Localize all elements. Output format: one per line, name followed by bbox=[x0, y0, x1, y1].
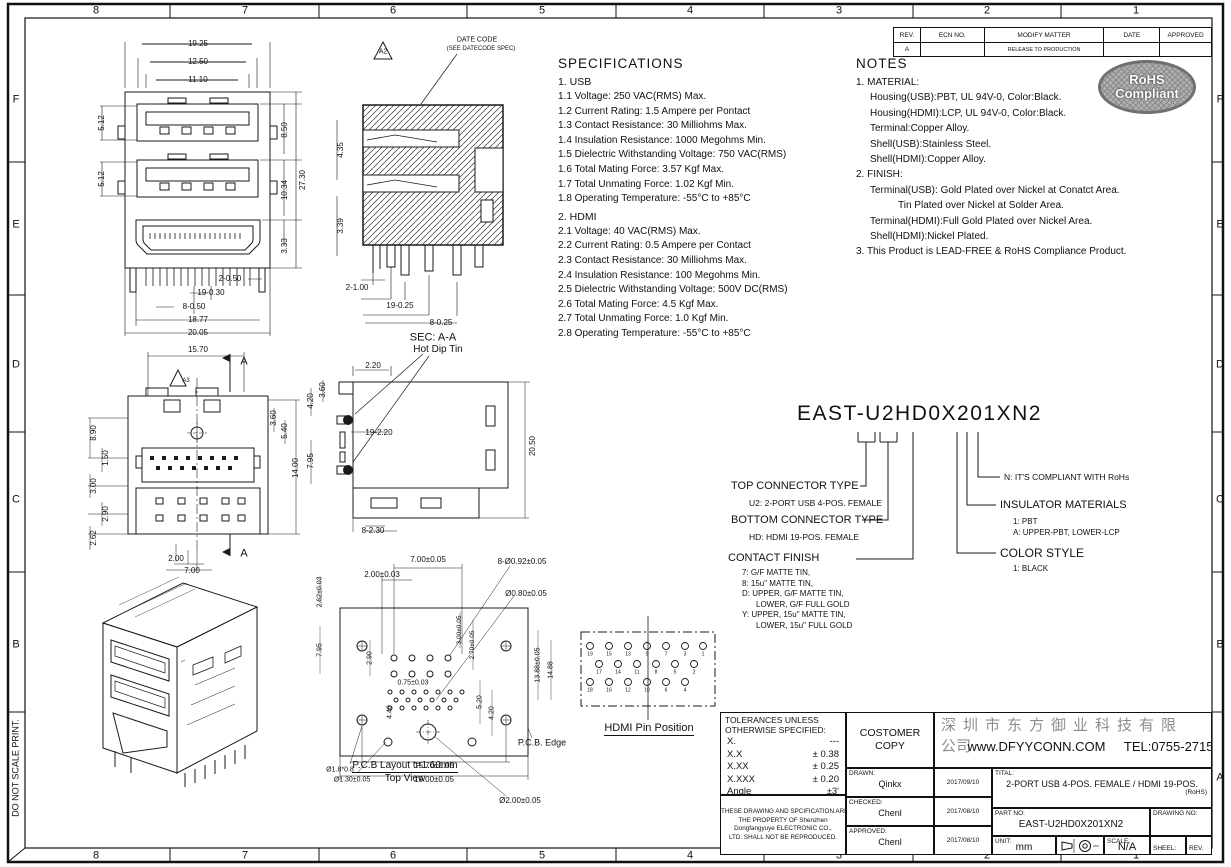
spec-line: 1.3 Contact Resistance: 30 Milliohms Max… bbox=[558, 119, 858, 134]
tolerance-row: X.XX± 0.25 bbox=[721, 761, 845, 774]
dimension-label: 3.60 bbox=[319, 382, 327, 398]
dimension-label: 3.33 bbox=[281, 238, 289, 254]
checked-cell: CHECKED: Chenl bbox=[846, 797, 934, 826]
dimension-label: 8-0.50 bbox=[183, 303, 206, 311]
rev-header: REV. bbox=[894, 28, 921, 43]
dimension-label: 20.50 bbox=[529, 436, 537, 456]
checked-label: CHECKED: bbox=[847, 798, 933, 808]
ecn-value bbox=[921, 43, 985, 57]
spec-line: 1.4 Insulation Resistance: 1000 Megohms … bbox=[558, 134, 858, 149]
pcb-caption-line2: Top View bbox=[330, 773, 480, 784]
spec-usb-heading: 1. USB bbox=[558, 75, 858, 90]
dimension-label: F bbox=[13, 95, 20, 106]
insulator-option: A: UPPER-PBT, LOWER-LCP bbox=[1013, 527, 1120, 538]
dimension-label: Hot Dip Tin bbox=[413, 345, 462, 355]
dimension-label: 2.90 bbox=[102, 506, 110, 522]
checked-name: Chenl bbox=[847, 808, 933, 818]
dimension-label: 7 bbox=[242, 6, 248, 17]
spec-line: 1.2 Current Rating: 1.5 Ampere per Ponta… bbox=[558, 105, 858, 120]
insulator-option: 1: PBT bbox=[1013, 516, 1120, 527]
spec-line: 2.5 Dielectric Withstanding Voltage: 500… bbox=[558, 283, 858, 298]
third-angle-projection-icon bbox=[1057, 837, 1103, 854]
title-box: TITAL: 2-PORT USB 4-POS. FEMALE / HDMI 1… bbox=[992, 768, 1212, 808]
dimension-label: 7.95 bbox=[307, 453, 315, 469]
note-line: Shell(USB):Stainless Steel. bbox=[856, 137, 1201, 152]
tolerance-row: X.XXX± 0.20 bbox=[721, 774, 845, 787]
dimension-label: 15 bbox=[606, 653, 612, 658]
dimension-label: 2.62±0.03 bbox=[317, 576, 324, 607]
specifications-title: SPECIFICATIONS bbox=[558, 56, 858, 71]
spec-hdmi-heading: 2. HDMI bbox=[558, 210, 858, 225]
scale-box: SCALE: N/A bbox=[1104, 836, 1150, 855]
dimension-label: DO NOT SCALE PRINT. bbox=[12, 719, 21, 817]
dimension-label: 14 bbox=[615, 671, 621, 676]
dimension-label: 10.34 bbox=[281, 180, 289, 200]
dimension-label: 5.20 bbox=[477, 695, 484, 709]
insulator-materials-options: 1: PBTA: UPPER-PBT, LOWER-LCP bbox=[1013, 516, 1120, 538]
dimension-label: (SEE DATECODE SPEC) bbox=[447, 46, 516, 52]
side-view-drawing bbox=[293, 340, 545, 540]
dimension-label: DATE CODE bbox=[457, 37, 497, 44]
spec-section-hdmi: 2. HDMI 2.1 Voltage: 40 VAC(RMS) Max.2.2… bbox=[558, 210, 858, 342]
hdmi-pin-caption-text: HDMI Pin Position bbox=[604, 722, 693, 736]
dimension-label: 10 bbox=[644, 689, 650, 694]
part-no-box: PART NO: EAST-U2HD0X201XN2 bbox=[992, 808, 1150, 836]
dimension-label: 17 bbox=[596, 671, 602, 676]
color-style-option: 1: BLACK bbox=[1013, 563, 1048, 574]
dimension-label: 19-0.25 bbox=[386, 302, 413, 310]
spec-line: 2.3 Contact Resistance: 30 Milliohms Max… bbox=[558, 254, 858, 269]
dimension-label: A3 bbox=[182, 378, 189, 384]
front-view: 19.2512.5011.105.125.128.5010.343.3327.3… bbox=[80, 30, 320, 342]
dimension-label: 5.12 bbox=[98, 115, 106, 131]
contact-finish-options: 7: G/F MATTE TIN,8: 15u" MATTE TIN,D: UP… bbox=[742, 568, 852, 631]
dimension-label: 5 bbox=[539, 6, 545, 17]
dimension-label: 3 bbox=[836, 6, 842, 17]
dimension-label: 6 bbox=[390, 851, 396, 862]
dimension-label: 5 bbox=[539, 851, 545, 862]
company-tel: TEL:0755-2715556 bbox=[1124, 739, 1212, 754]
drawn-date: 2017/09/10 bbox=[934, 768, 992, 797]
property-note-line: THE PROPERTY OF Shenzhen bbox=[721, 817, 845, 826]
dimension-label: 8-2.30 bbox=[362, 527, 385, 535]
property-note-line: THESE DRAWING AND SPCIFICATION ARE bbox=[721, 808, 845, 817]
spec-usb-items: 1.1 Voltage: 250 VAC(RMS) Max.1.2 Curren… bbox=[558, 90, 858, 207]
dimension-label: 4.35 bbox=[337, 142, 345, 158]
dimension-label: 1 bbox=[702, 653, 705, 658]
contact-finish-option: 8: 15u" MATTE TIN, bbox=[742, 579, 852, 590]
company-name-cn: 深圳市东方御业科技有限 bbox=[941, 716, 1211, 736]
rev-label: REV. bbox=[1187, 844, 1206, 853]
engineering-drawing-page: 8765432187654321FEDCBFEDCBADO NOT SCALE … bbox=[0, 0, 1231, 867]
top-connector-type-detail: U2: 2-PORT USB 4-POS. FEMALE bbox=[749, 498, 882, 508]
spec-line: 1.7 Total Unmating Force: 1.02 Kgf Min. bbox=[558, 178, 858, 193]
rohs-compliance-callout: N: IT'S COMPLIANT WITH RoHs bbox=[1004, 472, 1129, 482]
dimension-label: 14.88 bbox=[548, 661, 555, 679]
spec-line: 1.1 Voltage: 250 VAC(RMS) Max. bbox=[558, 90, 858, 105]
dimension-label: 0.75±0.03 bbox=[397, 680, 428, 687]
dimension-label: 12 bbox=[625, 689, 631, 694]
approved-cell: APPROVED: Chenl bbox=[846, 826, 934, 855]
scale-label: SCALE: bbox=[1105, 837, 1132, 847]
spec-line: 2.7 Total Unmating Force: 1.0 Kgf Min. bbox=[558, 312, 858, 327]
dimension-label: 2.62 bbox=[90, 530, 98, 546]
dimension-label: 11 bbox=[634, 671, 639, 676]
dimension-label: 20.05 bbox=[188, 329, 208, 337]
spec-line: 2.1 Voltage: 40 VAC(RMS) Max. bbox=[558, 225, 858, 240]
customer-copy-line2: COPY bbox=[875, 740, 905, 753]
dimension-label: 8-Ø0.92±0.05 bbox=[498, 558, 547, 566]
customer-copy-line1: COSTOMER bbox=[860, 727, 920, 740]
dimension-label: 6 bbox=[390, 6, 396, 17]
contact-finish-option: LOWER, 15u" FULL GOLD bbox=[742, 621, 852, 632]
dimension-label: 2.90 bbox=[367, 651, 374, 665]
rear-view: 15.70AAA38.901.503.002.902.623.605.4014.… bbox=[78, 338, 300, 578]
contact-finish-label: CONTACT FINISH bbox=[728, 552, 819, 564]
approved-name: Chenl bbox=[847, 837, 933, 847]
spec-line: 1.6 Total Mating Force: 3.57 Kgf Max. bbox=[558, 163, 858, 178]
section-view-drawing bbox=[325, 30, 540, 344]
specifications-block: SPECIFICATIONS 1. USB 1.1 Voltage: 250 V… bbox=[558, 56, 858, 342]
dimension-label: 9 bbox=[646, 653, 649, 658]
property-note-line: Dongfangyuye ELECTRONIC CO., bbox=[721, 825, 845, 834]
rohs-stamp-line2: Compliant bbox=[1115, 87, 1179, 101]
spec-line: 1.8 Operating Temperature: -55°C to +85°… bbox=[558, 192, 858, 207]
rohs-stamp-line1: RoHS bbox=[1129, 73, 1164, 87]
dimension-label: A bbox=[1216, 773, 1223, 784]
side-view: Hot Dip Tin2.203.604.2019-2.207.9520.508… bbox=[293, 340, 545, 540]
dimension-label: 7 bbox=[665, 653, 668, 658]
company-box: 深圳市东方御业科技有限 公司 www.DFYYCONN.COM TEL:0755… bbox=[934, 712, 1212, 768]
date-header: DATE bbox=[1104, 28, 1160, 43]
dimension-label: Ø2.00±0.05 bbox=[499, 797, 541, 805]
approved-header: APPROVED bbox=[1160, 28, 1212, 43]
property-note-box: THESE DRAWING AND SPCIFICATION ARETHE PR… bbox=[720, 795, 846, 855]
bottom-connector-type-detail: HD: HDMI 19-POS. FEMALE bbox=[749, 532, 859, 542]
dimension-label: 2-0.50 bbox=[219, 275, 242, 283]
note-line: Tin Plated over Nickel at Solder Area. bbox=[856, 198, 1201, 213]
drawn-label: DRAWN: bbox=[847, 769, 933, 779]
approved-label: APPROVED: bbox=[847, 827, 933, 837]
dimension-label: 4 bbox=[684, 689, 687, 694]
dimension-label: F bbox=[1217, 95, 1224, 106]
dimension-label: A bbox=[240, 357, 247, 368]
contact-finish-option: D: UPPER, G/F MATTE TIN, bbox=[742, 589, 852, 600]
bottom-connector-type-label: BOTTOM CONNECTOR TYPE bbox=[731, 514, 883, 526]
modify-matter-value: RELEASE TO PRODUCTION bbox=[985, 43, 1105, 57]
hdmi-pin-caption: HDMI Pin Position bbox=[578, 722, 720, 736]
dimension-label: 4 bbox=[687, 6, 693, 17]
dimension-label: 5.40 bbox=[281, 423, 289, 439]
dimension-label: A2 bbox=[379, 49, 388, 56]
rohs-compliant-stamp: RoHS Compliant bbox=[1098, 60, 1196, 114]
dimension-label: 2.20 bbox=[365, 362, 381, 370]
dimension-label: 13.88±0.05 bbox=[535, 648, 542, 683]
dimension-label: P.C.B. Edge bbox=[518, 739, 566, 748]
dimension-label: 4 bbox=[687, 851, 693, 862]
part-no-value: EAST-U2HD0X201XN2 bbox=[993, 819, 1149, 830]
dimension-label: 4.40 bbox=[387, 705, 394, 719]
dimension-label: 12.50 bbox=[188, 58, 208, 66]
dimension-label: 3.39 bbox=[337, 218, 345, 234]
insulator-materials-label: INSULATOR MATERIALS bbox=[1000, 499, 1127, 511]
drawing-no-box: DRAWING NO: bbox=[1150, 808, 1212, 836]
sheet-box: SHEEL: bbox=[1150, 836, 1186, 855]
dimension-label: 3 bbox=[684, 653, 687, 658]
title-rohs-note: (RoHS) bbox=[993, 789, 1211, 796]
spec-hdmi-items: 2.1 Voltage: 40 VAC(RMS) Max.2.2 Current… bbox=[558, 225, 858, 342]
dimension-label: 6 bbox=[665, 689, 668, 694]
dimension-label: 8 bbox=[93, 6, 99, 17]
top-connector-type-label: TOP CONNECTOR TYPE bbox=[731, 480, 859, 492]
sheet-label: SHEEL: bbox=[1151, 844, 1178, 853]
dimension-label: 19-0.30 bbox=[197, 289, 224, 297]
dimension-label: 4.20 bbox=[307, 393, 315, 409]
dimension-label: 8.90 bbox=[90, 425, 98, 441]
rear-view-drawing bbox=[78, 338, 300, 578]
modify-matter-header: MODIFY MATTER bbox=[985, 28, 1105, 43]
dimension-label: 7.95 bbox=[317, 643, 324, 657]
dimension-label: B bbox=[12, 640, 19, 651]
dimension-label: E bbox=[1216, 220, 1223, 231]
note-line: Terminal(HDMI):Full Gold Plated over Nic… bbox=[856, 214, 1201, 229]
tolerances-title-line1: TOLERANCES UNLESS bbox=[721, 713, 845, 725]
dimension-label: 8 bbox=[93, 851, 99, 862]
drawing-title-text: 2-PORT USB 4-POS. FEMALE / HDMI 19-POS. bbox=[993, 779, 1211, 789]
unit-box: UNIT: mm bbox=[992, 836, 1056, 855]
dimension-label: 3.00±0.05 bbox=[457, 616, 464, 645]
dimension-label: 4.20 bbox=[489, 706, 496, 720]
contact-finish-option: Y: UPPER, 15u" MATTE TIN, bbox=[742, 610, 852, 621]
dimension-label: 7.00±0.05 bbox=[410, 556, 446, 564]
spec-line: 1.5 Dielectric Withstanding Voltage: 750… bbox=[558, 148, 858, 163]
dimension-label: 11.10 bbox=[188, 76, 207, 84]
color-style-label: COLOR STYLE bbox=[1000, 546, 1084, 560]
date-value bbox=[1104, 43, 1160, 57]
dimension-label: D bbox=[12, 360, 20, 371]
note-line: Shell(HDMI):Nickel Plated. bbox=[856, 229, 1201, 244]
dimension-label: 8 bbox=[655, 671, 658, 676]
tolerance-row: X.--- bbox=[721, 736, 845, 749]
dimension-label: 1 bbox=[1133, 6, 1139, 17]
spec-line: 2.4 Insulation Resistance: 100 Megohms M… bbox=[558, 269, 858, 284]
dimension-label: 18 bbox=[587, 689, 593, 694]
dimension-label: 1.50 bbox=[102, 450, 110, 466]
checked-date: 2017/08/10 bbox=[934, 797, 992, 826]
dimension-label: 5 bbox=[674, 671, 677, 676]
drawn-name: Qinkx bbox=[847, 779, 933, 789]
isometric-view bbox=[75, 545, 280, 807]
note-line: Shell(HDMI):Copper Alloy. bbox=[856, 152, 1201, 167]
spec-line: 2.8 Operating Temperature: -55°C to +85°… bbox=[558, 327, 858, 342]
dimension-label: 2 bbox=[984, 6, 990, 17]
dimension-label: 8-0.25 bbox=[430, 319, 453, 327]
spec-section-usb: 1. USB 1.1 Voltage: 250 VAC(RMS) Max.1.2… bbox=[558, 75, 858, 207]
ecn-header: ECN NO. bbox=[921, 28, 985, 43]
color-style-options: 1: BLACK bbox=[1013, 563, 1048, 574]
dimension-label: 2.00±0.03 bbox=[364, 571, 400, 579]
dimension-label: 3.00 bbox=[90, 478, 98, 494]
rev-value: A bbox=[894, 43, 921, 57]
dimension-label: 18.77 bbox=[188, 316, 208, 324]
pcb-layout-caption: P.C.B Layout t=1.60mm Top View bbox=[330, 760, 480, 784]
tolerances-rows: X.---X.X± 0.38X.XX± 0.25X.XXX± 0.20Angle… bbox=[721, 736, 845, 799]
dimension-label: 2 bbox=[693, 671, 696, 676]
dimension-label: 8.50 bbox=[281, 122, 289, 138]
dimension-label: 15.70 bbox=[188, 346, 208, 354]
tolerance-row: X.X± 0.38 bbox=[721, 749, 845, 762]
note-line: 3. This Product is LEAD-FREE & RoHS Comp… bbox=[856, 244, 1201, 259]
dimension-label: Ø0.80±0.05 bbox=[505, 590, 547, 598]
pcb-caption-line1: P.C.B Layout t=1.60mm bbox=[352, 760, 457, 773]
dimension-label: 13 bbox=[625, 653, 631, 658]
note-line: 2. FINISH: bbox=[856, 167, 1201, 182]
note-line: Terminal:Copper Alloy. bbox=[856, 121, 1201, 136]
spec-line: 2.6 Total Mating Force: 4.5 Kgf Max. bbox=[558, 298, 858, 313]
title-label: TITAL: bbox=[993, 769, 1211, 779]
projection-box bbox=[1056, 836, 1104, 855]
spec-line: 2.2 Current Rating: 0.5 Ampere per Conta… bbox=[558, 239, 858, 254]
dimension-label: 19-2.20 bbox=[365, 429, 392, 437]
dimension-label: 16 bbox=[606, 689, 612, 694]
drawing-no-label: DRAWING NO: bbox=[1151, 809, 1211, 819]
drawn-cell: DRAWN: Qinkx bbox=[846, 768, 934, 797]
tolerances-box: TOLERANCES UNLESS OTHERWISE SPECIFIED: X… bbox=[720, 712, 846, 795]
dimension-label: 7 bbox=[242, 851, 248, 862]
tolerances-title-line2: OTHERWISE SPECIFIED: bbox=[721, 725, 845, 736]
rev-box: REV. bbox=[1186, 836, 1212, 855]
dimension-label: C bbox=[12, 495, 20, 506]
unit-label: UNIT: bbox=[993, 837, 1013, 847]
dimension-label: 3.60 bbox=[270, 410, 278, 426]
part-no-label: PART NO: bbox=[993, 809, 1149, 819]
approved-value bbox=[1160, 43, 1212, 57]
approved-date: 2017/08/10 bbox=[934, 826, 992, 855]
company-website: www.DFYYCONN.COM bbox=[967, 739, 1105, 754]
dimension-label: 27.30 bbox=[299, 170, 307, 190]
dimension-label: 2-1.00 bbox=[346, 284, 369, 292]
property-note-line: LTD. SHALL NOT BE REPRODUCED. bbox=[721, 834, 845, 843]
revision-table: REV. ECN NO. MODIFY MATTER DATE APPROVED… bbox=[893, 27, 1212, 57]
section-view: A2DATE CODE(SEE DATECODE SPEC)4.353.392-… bbox=[325, 30, 540, 344]
contact-finish-option: 7: G/F MATTE TIN, bbox=[742, 568, 852, 579]
dimension-label: 19 bbox=[587, 653, 593, 658]
customer-copy-box: COSTOMER COPY bbox=[846, 712, 934, 768]
dimension-label: 2.70±0.05 bbox=[470, 631, 477, 660]
dimension-label: 5.12 bbox=[98, 171, 106, 187]
isometric-view-drawing bbox=[75, 545, 280, 807]
note-line: Terminal(USB): Gold Plated over Nickel a… bbox=[856, 183, 1201, 198]
contact-finish-option: LOWER, G/F FULL GOLD bbox=[742, 600, 852, 611]
dimension-label: E bbox=[12, 220, 19, 231]
dimension-label: D bbox=[1216, 360, 1224, 371]
dimension-label: 19.25 bbox=[188, 40, 208, 48]
